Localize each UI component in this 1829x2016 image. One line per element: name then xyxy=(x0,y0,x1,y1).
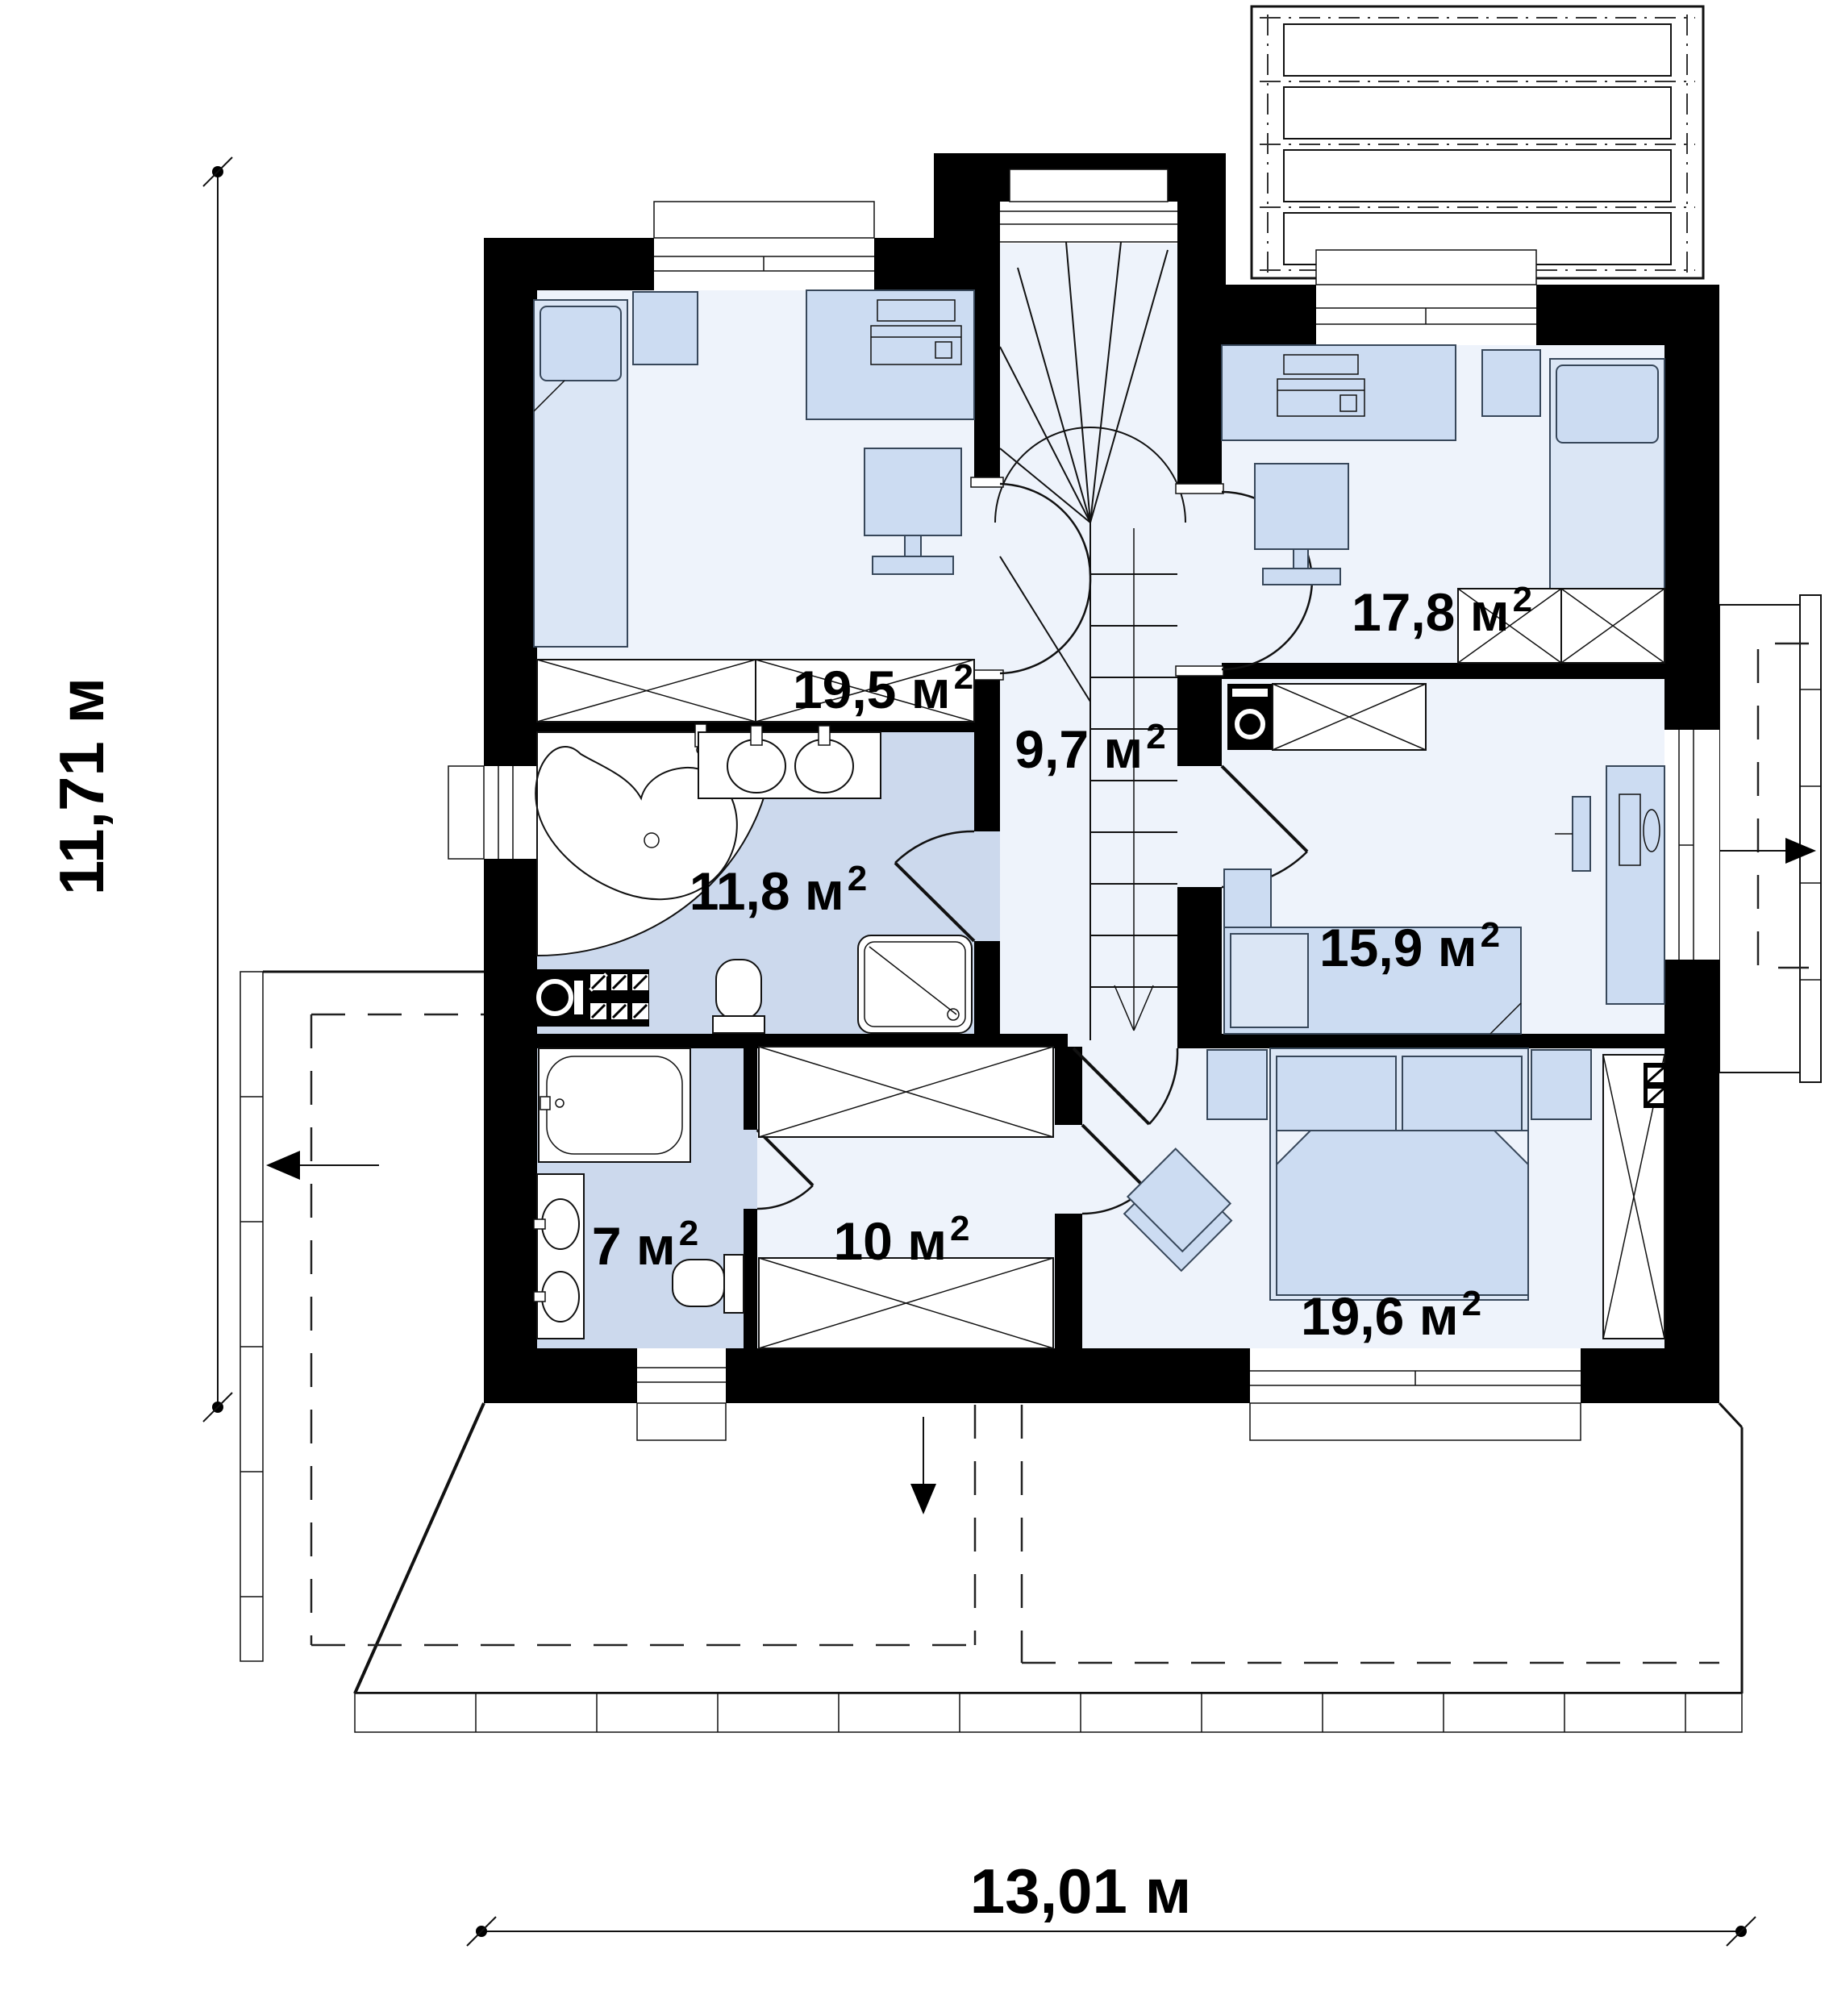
nightstand-right-icon xyxy=(1531,1050,1591,1119)
left-gutter xyxy=(240,972,263,1661)
nightstand-icon xyxy=(633,292,698,364)
window-bathroom-small xyxy=(637,1348,726,1440)
bed-icon xyxy=(534,300,627,647)
window-bedroom-top-right xyxy=(1316,250,1536,345)
dimension-horizontal: 13,01 м xyxy=(467,1856,1756,1946)
window-stairwell xyxy=(1000,169,1177,244)
vent-chimney-icon xyxy=(1644,1063,1668,1108)
label-bedroom-master: 19,6 м2 xyxy=(1301,1284,1481,1346)
double-sink-vanity-icon xyxy=(698,726,881,798)
label-bedroom-top-right: 17,8 м2 xyxy=(1352,580,1532,642)
balcony-slab xyxy=(1719,605,1800,1073)
floor-plan: 19,5 м2 9,7 м2 17,8 м2 11,8 м2 15,9 м2 7… xyxy=(0,0,1829,2016)
label-bedroom-right: 15,9 м2 xyxy=(1319,915,1500,977)
window-bedroom-master xyxy=(1250,1348,1581,1440)
dimension-vertical: 11,71 м xyxy=(46,157,232,1422)
bottom-gutter xyxy=(355,1693,1742,1732)
washing-machine-icon xyxy=(1227,684,1273,750)
partition-17-8-15-9 xyxy=(1222,663,1664,679)
partition-10-19-6 xyxy=(1055,1047,1082,1125)
label-bathroom-main: 11,8 м2 xyxy=(690,859,867,921)
roof-slope-arrow-down xyxy=(910,1417,936,1514)
wardrobe-top-icon xyxy=(759,1047,1053,1137)
nightstand-icon xyxy=(1224,869,1271,927)
shower-icon xyxy=(858,935,972,1033)
washing-machine-cabinet-icon xyxy=(530,969,649,1027)
desk-icon xyxy=(1222,345,1456,440)
window-bathroom-main xyxy=(448,766,537,859)
roof-slope-arrow-left xyxy=(266,1151,379,1180)
dimension-label-horizontal: 13,01 м xyxy=(970,1856,1192,1926)
dimension-label-vertical: 11,71 м xyxy=(46,677,117,895)
double-sink-icon xyxy=(534,1174,584,1339)
toilet-icon-small-bath xyxy=(673,1255,744,1313)
balcony-railing xyxy=(1800,595,1821,1082)
floor-hall xyxy=(1000,242,1177,1034)
window-bedroom-top-left xyxy=(654,202,874,290)
window-balcony-door xyxy=(1664,730,1719,960)
floor-plan-canvas: 19,5 м2 9,7 м2 17,8 м2 11,8 м2 15,9 м2 7… xyxy=(0,0,1829,2016)
desk-icon xyxy=(806,290,974,419)
nightstand-icon xyxy=(1482,350,1540,416)
label-bedroom-top-left: 19,5 м2 xyxy=(793,657,973,719)
roof-hip-line xyxy=(355,1403,484,1693)
partition-7-10 xyxy=(744,1047,757,1130)
hall-left-wall xyxy=(974,290,1000,484)
pergola-terrace xyxy=(1252,6,1703,278)
partition-row3-right xyxy=(1177,1034,1664,1048)
hall-right-wall xyxy=(1177,345,1222,492)
bathtub-icon xyxy=(539,1048,690,1162)
wardrobe-bottom-icon xyxy=(759,1258,1053,1348)
toilet-icon xyxy=(713,960,765,1033)
wardrobe-right-icon xyxy=(1273,684,1426,750)
nightstand-left-icon xyxy=(1207,1050,1267,1119)
double-bed-icon xyxy=(1270,1048,1528,1300)
